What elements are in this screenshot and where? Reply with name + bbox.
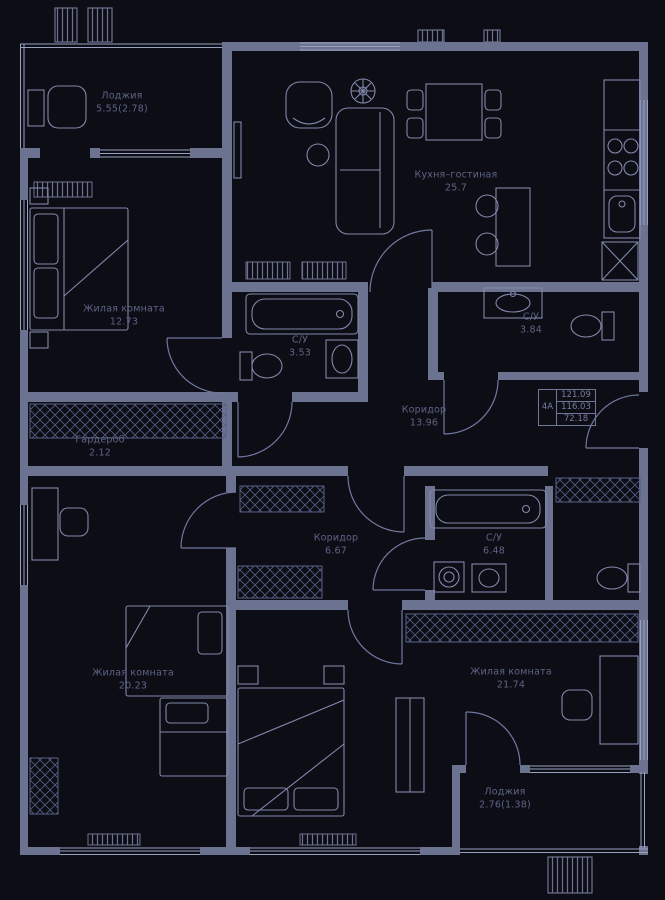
fridge <box>602 242 638 280</box>
floor-plan-drawing <box>0 0 665 900</box>
windows <box>20 43 648 855</box>
bathtub <box>430 490 546 528</box>
toilet <box>571 312 614 340</box>
door-arc <box>466 712 520 765</box>
tv-unit <box>234 122 241 178</box>
single-bed <box>126 606 228 696</box>
double-bed-right <box>238 666 344 816</box>
door-arc <box>238 402 292 457</box>
washbasin <box>472 564 506 592</box>
toilet <box>240 352 282 380</box>
door-arc <box>370 230 432 292</box>
bathtub <box>246 294 358 334</box>
corridor-closet-top <box>240 486 324 512</box>
hall-closet <box>556 478 640 502</box>
kitchen-counter <box>604 80 640 238</box>
door-arc <box>167 338 222 393</box>
washbasin-console <box>484 288 542 318</box>
desk <box>562 656 638 744</box>
exterior-walls <box>20 42 648 855</box>
bar-counter <box>476 188 530 266</box>
single-bed <box>160 698 228 776</box>
loggia-chair <box>28 86 86 128</box>
coffee-table <box>307 144 329 166</box>
door-arc <box>348 610 402 664</box>
floor-plan: Лоджия 5.55(2.78) Кухня–гостиная 25.7 Жи… <box>0 0 665 900</box>
washing-machine <box>434 562 464 592</box>
furniture <box>28 79 640 816</box>
door-arc <box>373 538 425 590</box>
radiators <box>34 182 356 845</box>
door-arc <box>444 380 498 434</box>
stamp-living-area: 72.18 <box>557 414 596 426</box>
interior-walls <box>20 42 648 855</box>
desk <box>32 488 88 560</box>
bedroom-left-closet <box>30 758 58 814</box>
bedroom-closet-row <box>406 614 638 642</box>
sofa <box>336 108 394 234</box>
toilet <box>597 564 640 592</box>
stamp-floor-area: 116.03 <box>557 402 596 414</box>
plant-icon <box>351 79 375 103</box>
dining-table <box>407 84 501 140</box>
corridor-closet-bottom <box>238 566 322 598</box>
apartment-stamp: 4А 121.09 116.03 72.18 <box>538 389 596 426</box>
washbasin <box>326 340 358 378</box>
apartment-unit-number: 4А <box>538 389 557 426</box>
wardrobe-closet <box>30 404 226 438</box>
tall-wardrobe <box>396 698 424 792</box>
door-arc <box>181 492 236 548</box>
armchair <box>286 82 332 128</box>
stamp-total-area: 121.09 <box>557 389 596 402</box>
door-arc <box>348 476 404 532</box>
double-bed-left <box>30 188 128 348</box>
